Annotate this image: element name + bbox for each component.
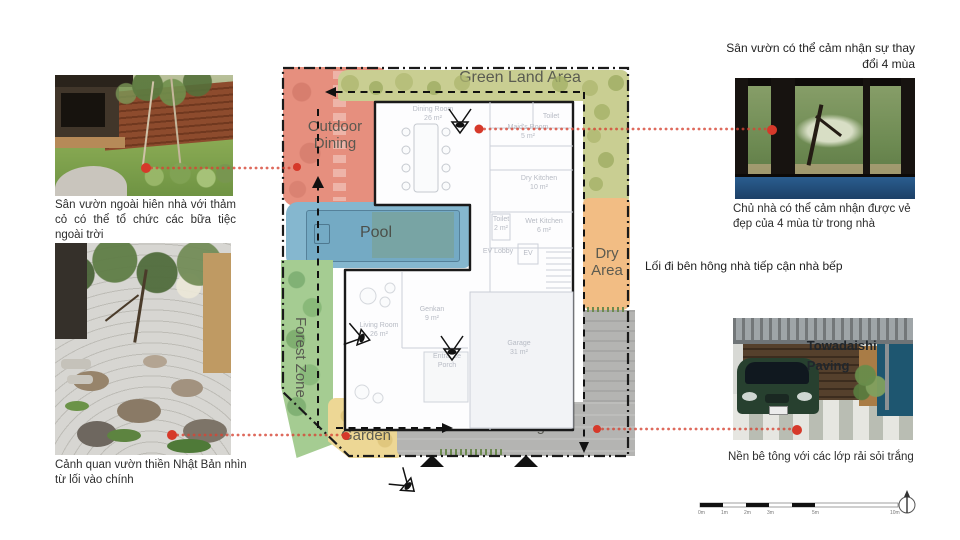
room-label-ev: EV	[523, 250, 532, 259]
room-label-genkan: Genkan 9 m²	[420, 306, 445, 324]
room-label-living: Living Room 26 m²	[360, 322, 399, 340]
room-label-ev-lobby: EV Lobby	[483, 248, 513, 257]
building-plan-svg	[0, 0, 960, 540]
site-plan: Outdoor Dining Green Land Area Dry Area …	[0, 0, 960, 540]
room-label-dry-kitchen: Dry Kitchen 10 m²	[521, 175, 557, 193]
room-label-toilet-top: Toilet	[543, 113, 559, 122]
room-label-toilet-small: Toilet 2 m²	[493, 216, 509, 234]
garage-floor	[470, 292, 573, 428]
site-plan-presentation: Sân vườn ngoài hiên nhà với thảm cỏ có t…	[0, 0, 960, 540]
room-label-dining: Dining Room 26 m²	[413, 106, 453, 124]
room-label-porch: Entrance Porch	[430, 353, 464, 371]
room-label-wet-kitchen: Wet Kitchen 6 m²	[525, 218, 563, 236]
room-label-garage: Garage 31 m²	[507, 340, 530, 358]
room-label-maid: Maid's Room 5 m²	[508, 124, 549, 142]
